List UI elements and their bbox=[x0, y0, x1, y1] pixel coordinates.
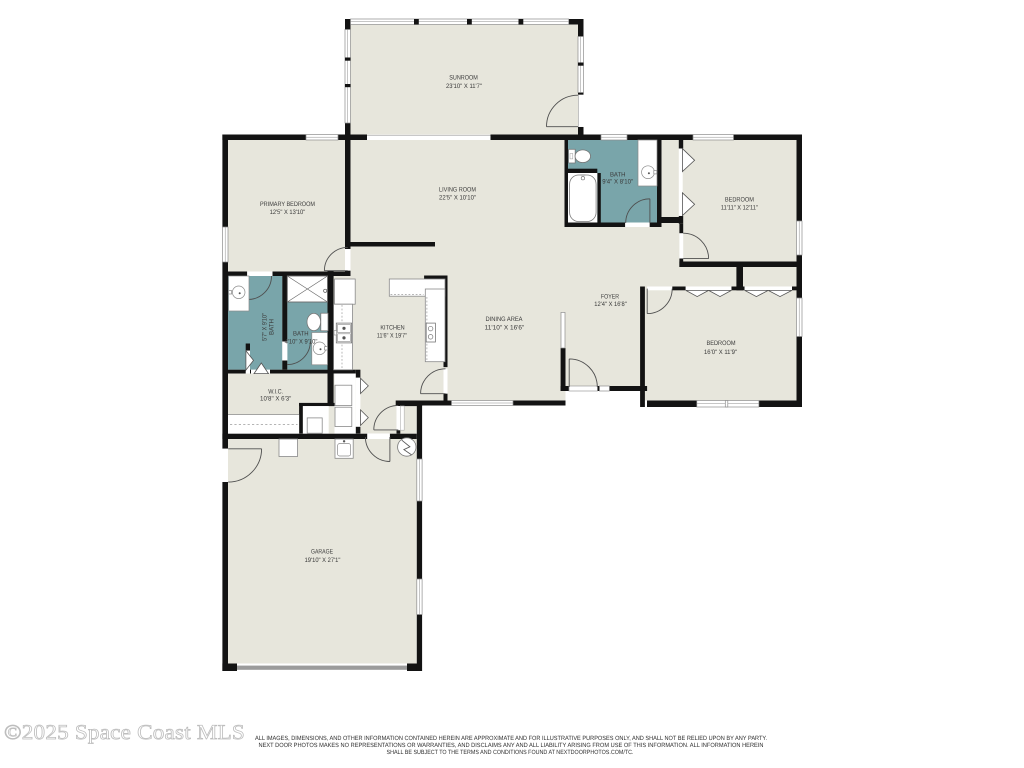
svg-text:11'10" X 16'6": 11'10" X 16'6" bbox=[485, 324, 525, 331]
svg-text:12'4" X 16'8": 12'4" X 16'8" bbox=[594, 301, 627, 308]
svg-text:BATH: BATH bbox=[269, 319, 276, 335]
svg-text:10'8" X 6'3": 10'8" X 6'3" bbox=[260, 396, 292, 403]
svg-text:BATH: BATH bbox=[610, 171, 626, 178]
svg-text:BEDROOM: BEDROOM bbox=[725, 196, 754, 203]
svg-text:FOYER: FOYER bbox=[601, 294, 619, 301]
svg-text:4'10" X 9'10": 4'10" X 9'10" bbox=[285, 338, 318, 345]
svg-text:SHALL BE SUBJECT TO THE TERMS: SHALL BE SUBJECT TO THE TERMS AND CONDIT… bbox=[387, 749, 634, 756]
svg-text:PRIMARY BEDROOM: PRIMARY BEDROOM bbox=[260, 201, 315, 208]
svg-text:11'11" X 12'11": 11'11" X 12'11" bbox=[721, 205, 759, 212]
svg-text:W.I.C.: W.I.C. bbox=[268, 389, 283, 396]
svg-text:BEDROOM: BEDROOM bbox=[707, 340, 736, 347]
svg-text:BATH: BATH bbox=[293, 330, 309, 337]
svg-text:SUNROOM: SUNROOM bbox=[449, 75, 478, 82]
svg-text:LIVING ROOM: LIVING ROOM bbox=[439, 186, 476, 193]
svg-text:5'7" X 9'10": 5'7" X 9'10" bbox=[262, 312, 269, 341]
svg-text:23'10" X 11'7": 23'10" X 11'7" bbox=[446, 83, 483, 90]
svg-text:22'5" X 10'10": 22'5" X 10'10" bbox=[439, 195, 477, 202]
svg-text:11'6" X 19'7": 11'6" X 19'7" bbox=[377, 333, 408, 340]
svg-text:19'10" X 27'1": 19'10" X 27'1" bbox=[305, 557, 341, 564]
svg-text:NEXT DOOR PHOTOS MAKES NO REPR: NEXT DOOR PHOTOS MAKES NO REPRESENTATION… bbox=[259, 742, 764, 749]
svg-text:12'5" X 13'10": 12'5" X 13'10" bbox=[270, 209, 306, 216]
svg-text:GARAGE: GARAGE bbox=[311, 548, 334, 555]
svg-text:9'4" X 8'10": 9'4" X 8'10" bbox=[602, 179, 633, 186]
svg-text:ALL IMAGES, DIMENSIONS, AND OT: ALL IMAGES, DIMENSIONS, AND OTHER INFORM… bbox=[255, 735, 767, 742]
svg-text:©2025 Space Coast MLS: ©2025 Space Coast MLS bbox=[4, 720, 245, 744]
svg-text:16'0" X 11'9": 16'0" X 11'9" bbox=[704, 349, 738, 356]
svg-text:KITCHEN: KITCHEN bbox=[380, 325, 405, 332]
svg-text:DINING AREA: DINING AREA bbox=[486, 316, 524, 323]
